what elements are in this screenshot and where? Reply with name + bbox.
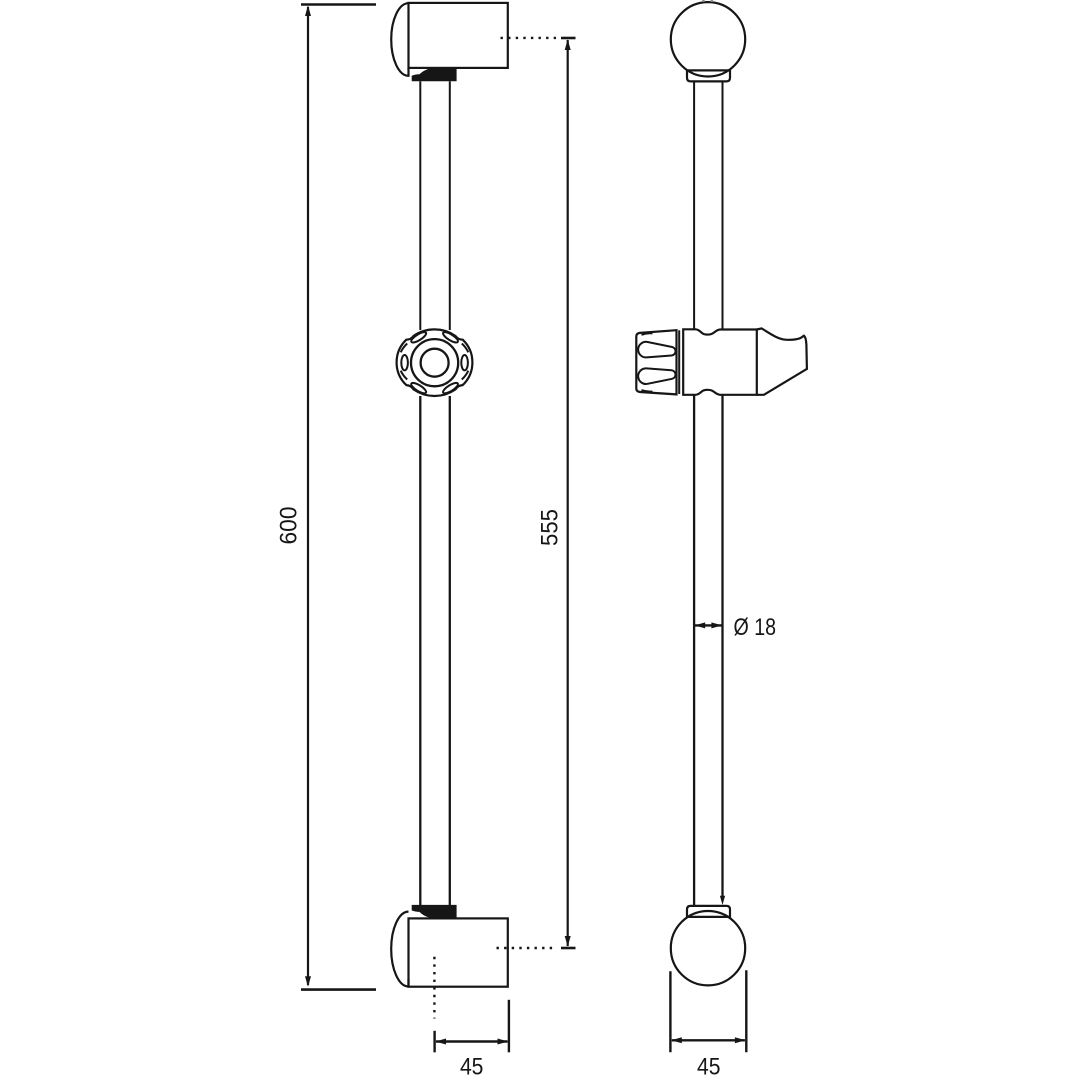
svg-text:45: 45 bbox=[460, 1053, 484, 1080]
svg-text:555: 555 bbox=[537, 509, 564, 546]
svg-text:Ø 18: Ø 18 bbox=[734, 614, 777, 641]
svg-text:45: 45 bbox=[697, 1053, 721, 1080]
svg-text:600: 600 bbox=[276, 507, 303, 545]
